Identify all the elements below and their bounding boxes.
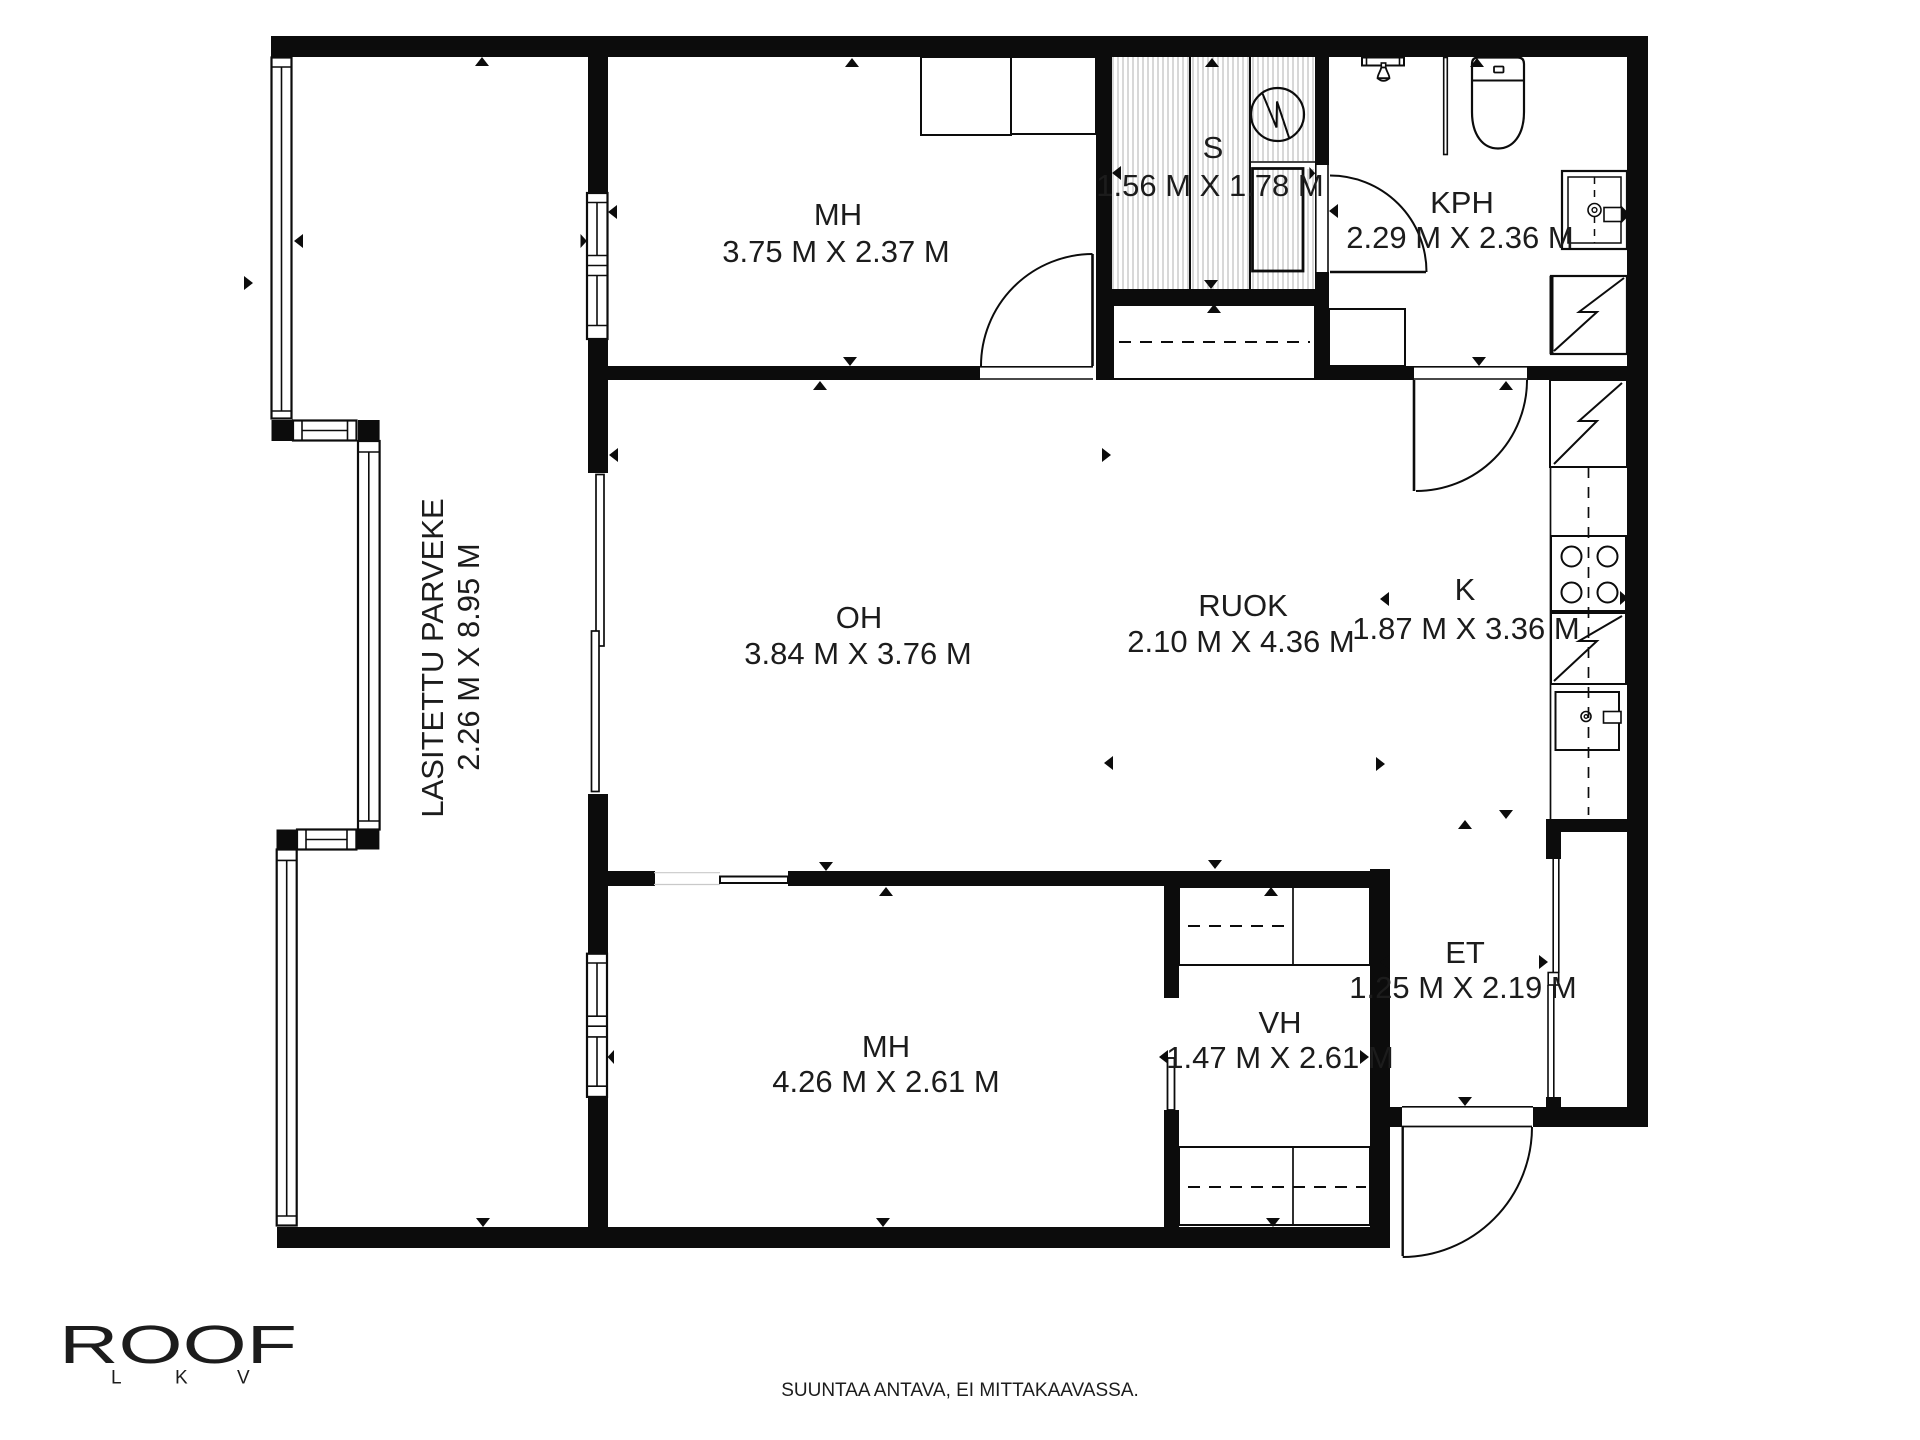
svg-text:OH: OH <box>836 600 883 635</box>
svg-text:RUOK: RUOK <box>1198 588 1288 623</box>
svg-text:ROOF: ROOF <box>59 1315 297 1375</box>
svg-text:2.26 M X 8.95 M: 2.26 M X 8.95 M <box>451 543 486 770</box>
svg-text:S: S <box>1203 130 1224 165</box>
svg-text:KPH: KPH <box>1430 185 1494 220</box>
svg-text:4.26 M X 2.61 M: 4.26 M X 2.61 M <box>772 1064 999 1099</box>
svg-text:L: L <box>111 1368 122 1389</box>
svg-text:1.47 M X 2.61 M: 1.47 M X 2.61 M <box>1166 1040 1393 1075</box>
svg-text:LASITETTU PARVEKE: LASITETTU PARVEKE <box>415 498 450 817</box>
svg-text:K: K <box>175 1368 188 1389</box>
svg-text:2.10 M X 4.36 M: 2.10 M X 4.36 M <box>1127 624 1354 659</box>
svg-text:MH: MH <box>862 1029 910 1064</box>
svg-text:K: K <box>1455 572 1476 607</box>
svg-text:VH: VH <box>1258 1005 1301 1040</box>
svg-text:2.29 M X 2.36 M: 2.29 M X 2.36 M <box>1346 220 1573 255</box>
svg-text:1.25 M X 2.19 M: 1.25 M X 2.19 M <box>1349 970 1576 1005</box>
svg-text:ET: ET <box>1445 935 1485 970</box>
svg-text:3.75 M X 2.37 M: 3.75 M X 2.37 M <box>722 234 949 269</box>
svg-text:MH: MH <box>814 197 862 232</box>
svg-text:1.87 M X 3.36 M: 1.87 M X 3.36 M <box>1352 611 1579 646</box>
svg-text:V: V <box>237 1368 250 1389</box>
svg-text:1.56 M X 1.78 M: 1.56 M X 1.78 M <box>1096 168 1323 203</box>
svg-text:3.84 M X 3.76 M: 3.84 M X 3.76 M <box>744 636 971 671</box>
svg-text:SUUNTAA ANTAVA, EI MITTAKAAVAS: SUUNTAA ANTAVA, EI MITTAKAAVASSA. <box>781 1380 1139 1401</box>
